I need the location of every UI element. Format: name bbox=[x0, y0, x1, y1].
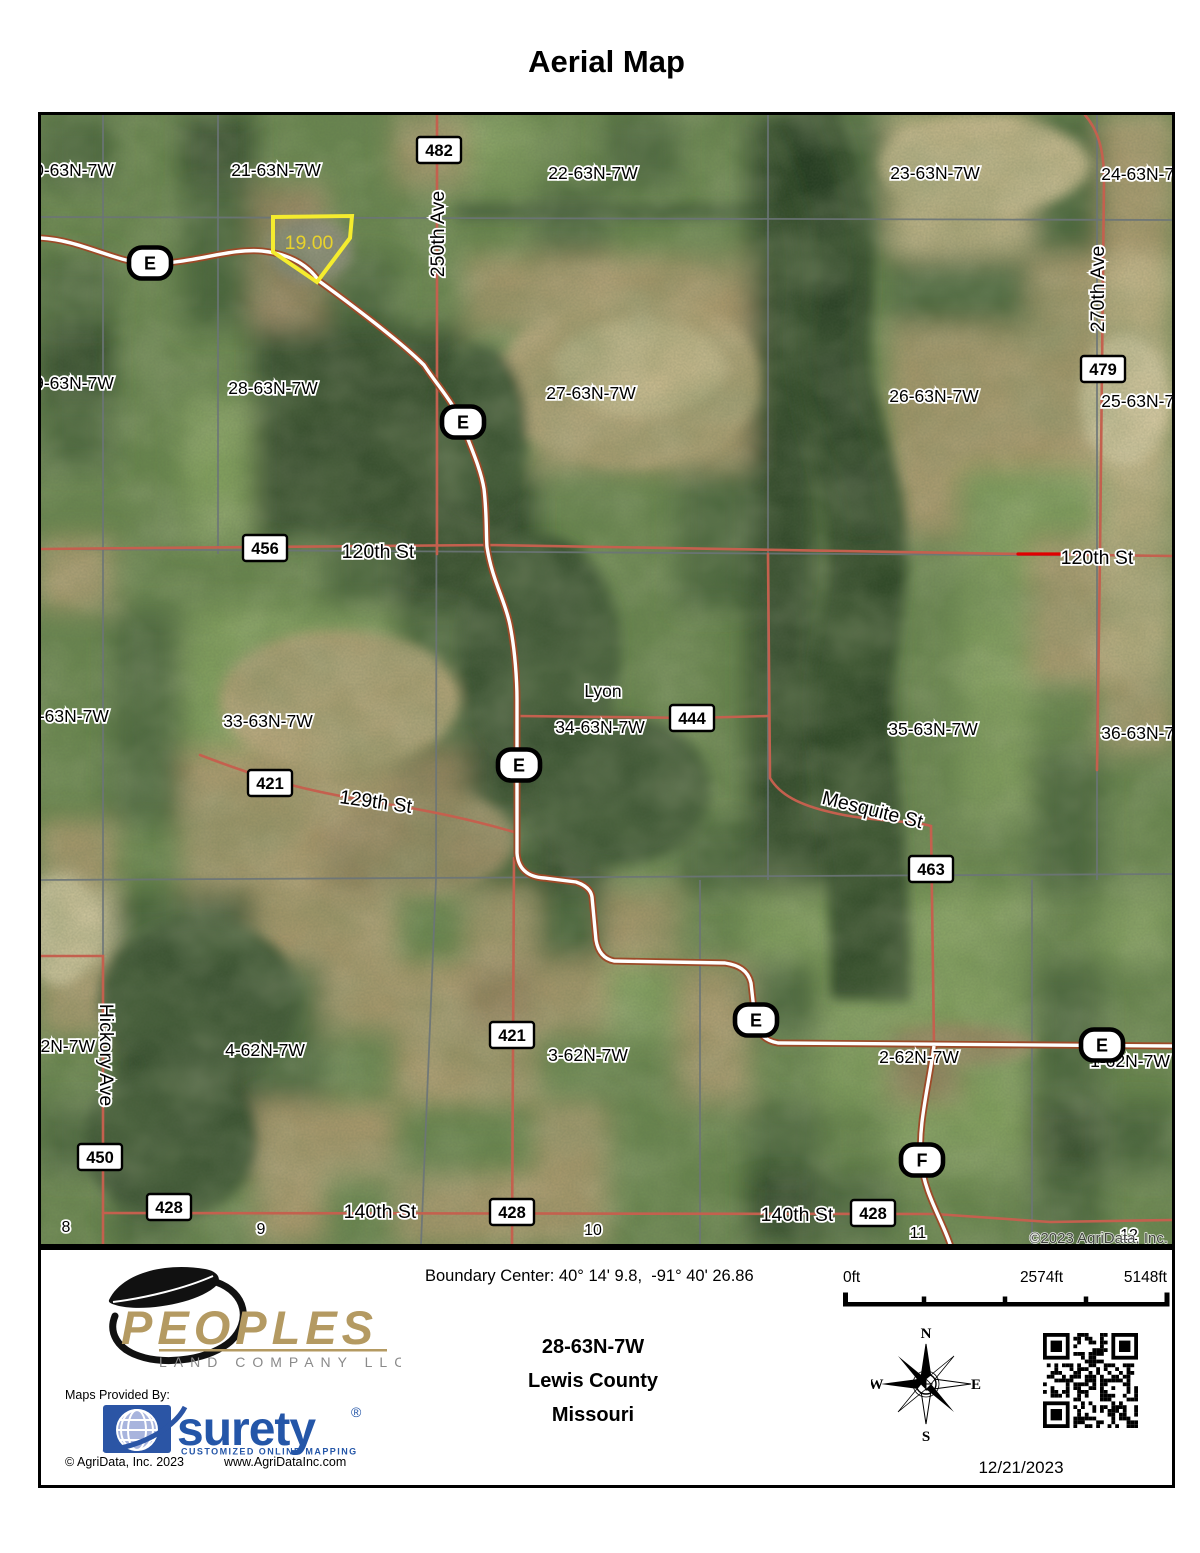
svg-text:270th Ave: 270th Ave bbox=[1087, 246, 1109, 332]
svg-text:E: E bbox=[144, 254, 156, 274]
svg-text:428: 428 bbox=[498, 1204, 526, 1222]
svg-text:0-63N-7W: 0-63N-7W bbox=[41, 160, 114, 180]
svg-text:428: 428 bbox=[859, 1205, 887, 1223]
svg-text:®: ® bbox=[351, 1404, 362, 1420]
svg-text:2-62N-7W: 2-62N-7W bbox=[879, 1047, 959, 1067]
svg-text:33-63N-7W: 33-63N-7W bbox=[223, 711, 313, 731]
svg-text:10: 10 bbox=[584, 1222, 602, 1239]
svg-text:28-63N-7W: 28-63N-7W bbox=[228, 378, 318, 398]
svg-text:21-63N-7W: 21-63N-7W bbox=[231, 160, 321, 180]
svg-text:2-63N-7W: 2-63N-7W bbox=[41, 706, 109, 726]
svg-text:26-63N-7W: 26-63N-7W bbox=[889, 386, 979, 406]
svg-text:PEOPLES: PEOPLES bbox=[121, 1301, 378, 1354]
svg-text:E: E bbox=[513, 756, 525, 776]
svg-text:E: E bbox=[971, 1377, 981, 1393]
svg-text:450: 450 bbox=[86, 1149, 114, 1167]
svg-text:25-63N-7W: 25-63N-7W bbox=[1101, 391, 1172, 411]
svg-text:©2023 AgriData, Inc.: ©2023 AgriData, Inc. bbox=[1029, 1230, 1168, 1244]
svg-text:W: W bbox=[871, 1377, 884, 1393]
svg-text:F: F bbox=[917, 1151, 928, 1171]
svg-text:9: 9 bbox=[257, 1221, 266, 1238]
svg-text:E: E bbox=[457, 413, 469, 433]
svg-text:482: 482 bbox=[425, 142, 453, 160]
svg-text:LAND COMPANY LLC: LAND COMPANY LLC bbox=[159, 1354, 401, 1370]
svg-text:27-63N-7W: 27-63N-7W bbox=[546, 383, 636, 403]
svg-text:E: E bbox=[750, 1011, 762, 1031]
svg-text:8: 8 bbox=[62, 1219, 71, 1236]
svg-text:4-62N-7W: 4-62N-7W bbox=[225, 1040, 305, 1060]
svg-text:11: 11 bbox=[910, 1225, 927, 1242]
svg-text:22-63N-7W: 22-63N-7W bbox=[548, 163, 638, 183]
svg-text:120th St: 120th St bbox=[342, 541, 415, 563]
svg-text:120th St: 120th St bbox=[1061, 547, 1134, 569]
svg-text:421: 421 bbox=[498, 1027, 526, 1045]
svg-text:36-63N-7W: 36-63N-7W bbox=[1101, 723, 1172, 743]
svg-text:19.00: 19.00 bbox=[285, 232, 334, 254]
svg-text:24-63N-7W: 24-63N-7W bbox=[1101, 164, 1172, 184]
svg-text:N: N bbox=[921, 1326, 932, 1342]
svg-text:23-63N-7W: 23-63N-7W bbox=[890, 163, 980, 183]
svg-text:34-63N-7W: 34-63N-7W bbox=[555, 717, 645, 737]
svg-text:-62N-7W: -62N-7W bbox=[41, 1036, 95, 1056]
svg-text:35-63N-7W: 35-63N-7W bbox=[888, 719, 978, 739]
svg-text:E: E bbox=[1096, 1036, 1108, 1056]
svg-text:250th Ave: 250th Ave bbox=[427, 191, 449, 277]
svg-text:9-63N-7W: 9-63N-7W bbox=[41, 373, 114, 393]
svg-text:463: 463 bbox=[917, 861, 945, 879]
svg-text:479: 479 bbox=[1089, 361, 1117, 379]
svg-text:3-62N-7W: 3-62N-7W bbox=[548, 1045, 628, 1065]
svg-text:444: 444 bbox=[678, 710, 706, 728]
svg-text:Hickory Ave: Hickory Ave bbox=[95, 1004, 117, 1107]
svg-text:140th St: 140th St bbox=[344, 1201, 417, 1223]
svg-text:S: S bbox=[922, 1429, 930, 1445]
svg-text:456: 456 bbox=[251, 540, 279, 558]
svg-text:421: 421 bbox=[256, 775, 284, 793]
svg-text:Lyon: Lyon bbox=[584, 681, 621, 701]
svg-text:140th St: 140th St bbox=[761, 1204, 834, 1226]
svg-text:428: 428 bbox=[155, 1199, 183, 1217]
